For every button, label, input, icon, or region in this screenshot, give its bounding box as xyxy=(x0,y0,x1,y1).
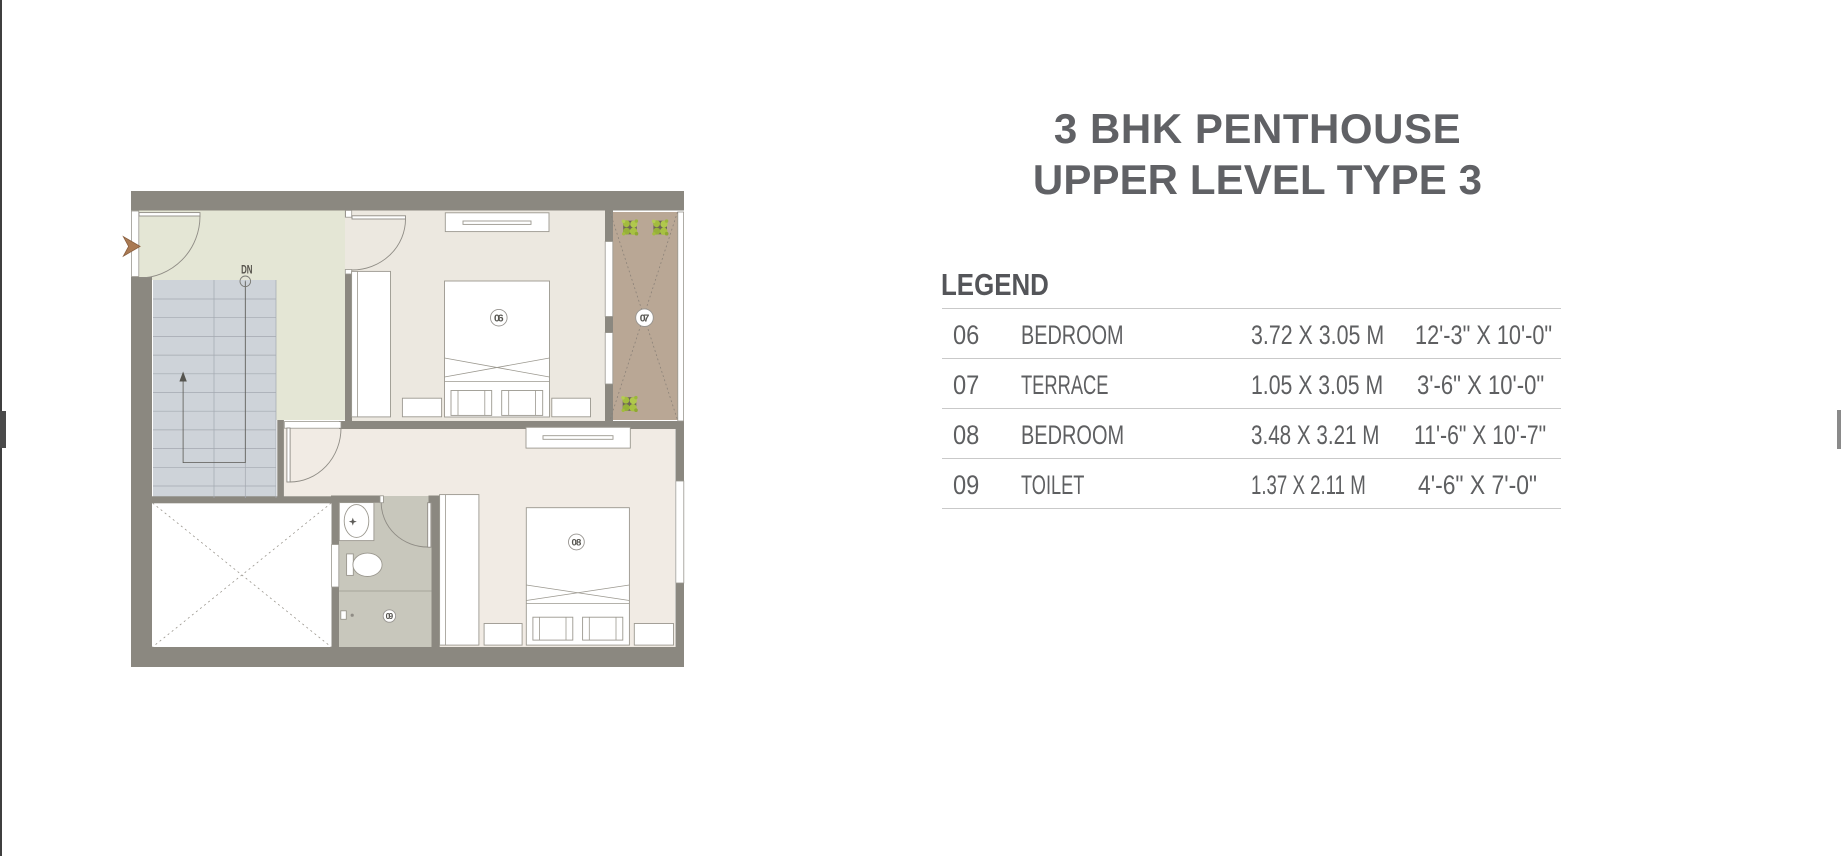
svg-text:07: 07 xyxy=(640,313,650,325)
svg-text:09: 09 xyxy=(386,611,394,621)
svg-text:06: 06 xyxy=(494,313,504,325)
svg-text:DN: DN xyxy=(241,262,252,276)
svg-text:08: 08 xyxy=(572,538,582,549)
